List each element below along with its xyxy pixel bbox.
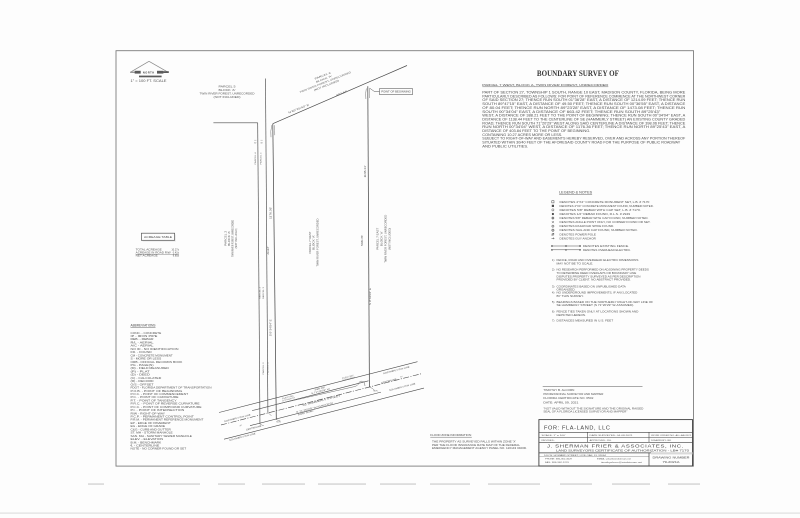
svg-text:PARCEL 3: PARCEL 3 <box>262 286 265 299</box>
svg-text:TWIN RIVER FOREST, UNRECORDED: TWIN RIVER FOREST, UNRECORDED <box>233 220 235 257</box>
svg-text:TWIN RIVER FOREST, UNRECORDED: TWIN RIVER FOREST, UNRECORDED <box>316 218 319 266</box>
svg-text:(NOT INCLUDED): (NOT INCLUDED) <box>214 96 241 99</box>
svg-text:PARCEL 3: PARCEL 3 <box>262 361 265 374</box>
svg-text:REVISED:: REVISED: <box>542 440 556 442</box>
svg-text:PARCEL 7 WEST: PARCEL 7 WEST <box>309 231 312 254</box>
svg-text:DISTANCES MEASURED IN U.S. FEE: DISTANCES MEASURED IN U.S. FEET <box>557 319 614 323</box>
svg-text:LAND SURVEYORS: LAND SURVEYORS <box>556 449 594 453</box>
svg-text:BLOCK 'A': BLOCK 'A' <box>313 234 316 250</box>
svg-text:BLOCK 'A': BLOCK 'A' <box>381 231 384 247</box>
svg-text:1138.44': 1138.44' <box>364 165 367 178</box>
svg-text:PARCEL 7 EAST: PARCEL 7 EAST <box>377 227 380 250</box>
svg-text:PARCEL 2: PARCEL 2 <box>258 286 261 299</box>
svg-text:4): 4) <box>552 291 555 295</box>
svg-text:AND PUBLIC UTILITIES.: AND PUBLIC UTILITIES. <box>482 144 528 148</box>
svg-text:MAY NOT BE TO SCALE.: MAY NOT BE TO SCALE. <box>557 262 594 266</box>
svg-text:J. SHERMAN FRIER & ASSOCIATES,: J. SHERMAN FRIER & ASSOCIATES, INC. <box>547 443 684 448</box>
svg-text:(NOT INCLUDED): (NOT INCLUDED) <box>388 228 391 250</box>
svg-text:ACREAGE TABLE: ACREAGE TABLE <box>144 235 172 239</box>
svg-text:FOR: FLA-LAND, LLC: FOR: FLA-LAND, LLC <box>544 426 611 432</box>
svg-text:6): 6) <box>552 310 555 314</box>
svg-text:SEAL OF A FLORIDA LICENSED SUR: SEAL OF A FLORIDA LICENSED SURVEYOR AND … <box>543 410 627 414</box>
svg-text:SCALE: 1" = 100': SCALE: 1" = 100' <box>542 434 567 437</box>
svg-text:timothyalcorn@windstream.net: timothyalcorn@windstream.net <box>601 461 643 464</box>
svg-text:POINT OF BEGINNING: POINT OF BEGINNING <box>381 91 411 94</box>
svg-text:EMERGENCY MANAGEMENT AGENCY PA: EMERGENCY MANAGEMENT AGENCY PANEL NO. 12… <box>432 446 527 450</box>
svg-text:MON: MON <box>276 421 281 423</box>
svg-text:1176.36': 1176.36' <box>270 206 273 219</box>
svg-text:ABBREVIATIONS: ABBREVIATIONS <box>131 323 156 327</box>
svg-text:PARCEL 4: PARCEL 4 <box>254 151 257 164</box>
svg-text:2): 2) <box>552 268 555 272</box>
svg-text:PARCEL 5: PARCEL 5 <box>259 151 262 164</box>
svg-text:BLOCK 'A': BLOCK 'A' <box>228 230 231 246</box>
svg-text:3): 3) <box>552 284 555 288</box>
svg-text:CERTIFICATE OF AUTHORIZATION -: CERTIFICATE OF AUTHORIZATION - LB# 7170 <box>595 449 690 453</box>
svg-text:SE HAMMERLY STREET (S 71°20'29: SE HAMMERLY STREET (S 71°20'29" W-ASSUME… <box>557 303 635 307</box>
svg-text:PROVIDED BY CLIENT. NO ABSTRAC: PROVIDED BY CLIENT. NO ABSTRACT PROVIDED… <box>557 278 632 282</box>
svg-text:DENOTES OVERHEAD ELECTRIC.: DENOTES OVERHEAD ELECTRIC. <box>583 248 631 252</box>
svg-text:APPROVED: JSL: APPROVED: JSL <box>590 439 613 442</box>
svg-text:5): 5) <box>552 300 555 304</box>
svg-text:EMAIL: jsfa@windstream.net: EMAIL: jsfa@windstream.net <box>597 457 632 460</box>
svg-text:S 0°34'04" E: S 0°34'04" E <box>270 319 273 336</box>
svg-text:WORK ORDER NO. ALL-AB-2021: WORK ORDER NO. ALL-AB-2021 <box>651 434 692 437</box>
svg-text:598.05': 598.05' <box>361 234 364 246</box>
svg-text:MON: MON <box>373 391 378 393</box>
svg-text:PARCEL 7 WEST, BLOCK A, TWIN R: PARCEL 7 WEST, BLOCK A, TWIN RIVER FORES… <box>482 83 609 87</box>
svg-text:PHONE: 386-362-4629: PHONE: 386-362-4629 <box>545 458 573 460</box>
svg-text:DEPICTED HEREON.: DEPICTED HEREON. <box>557 313 587 317</box>
svg-text:LEGEND & NOTES: LEGEND & NOTES <box>559 190 593 194</box>
svg-text:(NOT INCLUDED): (NOT INCLUDED) <box>236 228 238 248</box>
svg-text:1): 1) <box>552 258 555 262</box>
svg-text:BOUNDARY SURVEY OF: BOUNDARY SURVEY OF <box>537 69 619 78</box>
svg-text:NET ACREAGE: NET ACREAGE <box>136 255 158 258</box>
svg-text:7): 7) <box>552 319 555 323</box>
svg-text:PARCEL 4: PARCEL 4 <box>266 361 269 374</box>
svg-text:9.85±: 9.85± <box>173 255 180 258</box>
svg-text:DENOTES GUY ANCHOR: DENOTES GUY ANCHOR <box>560 236 596 240</box>
svg-text:PARCEL 2: PARCEL 2 <box>224 230 227 246</box>
svg-text:1" = 100 FT. SCALE: 1" = 100 FT. SCALE <box>131 79 168 83</box>
svg-text:FAX: 386-362-1270: FAX: 386-362-1270 <box>545 461 570 464</box>
svg-text:S 0°34'04" E: S 0°34'04" E <box>369 288 372 305</box>
svg-text:DATE SURVEYED: 04-08-2021: DATE SURVEYED: 04-08-2021 <box>590 434 634 437</box>
svg-text:NOTE - NO CORNER FOUND OR SET: NOTE - NO CORNER FOUND OR SET <box>131 447 187 451</box>
svg-text:BY THIS SURVEY.: BY THIS SURVEY. <box>557 294 585 298</box>
svg-text:NORTH: NORTH <box>143 71 155 75</box>
svg-text:FLOOD ZONE INFORMATION:: FLOOD ZONE INFORMATION: <box>430 433 472 437</box>
svg-text:DRAWN BY: BK: DRAWN BY: BK <box>651 439 672 442</box>
svg-text:DATE: APRIL 09, 2021: DATE: APRIL 09, 2021 <box>543 400 579 404</box>
svg-text:79-2021A: 79-2021A <box>663 460 680 464</box>
svg-text:ALLEY: ALLEY <box>267 246 270 255</box>
svg-text:TWIN RIVER FOREST, UNRECORDED: TWIN RIVER FOREST, UNRECORDED <box>384 215 387 263</box>
